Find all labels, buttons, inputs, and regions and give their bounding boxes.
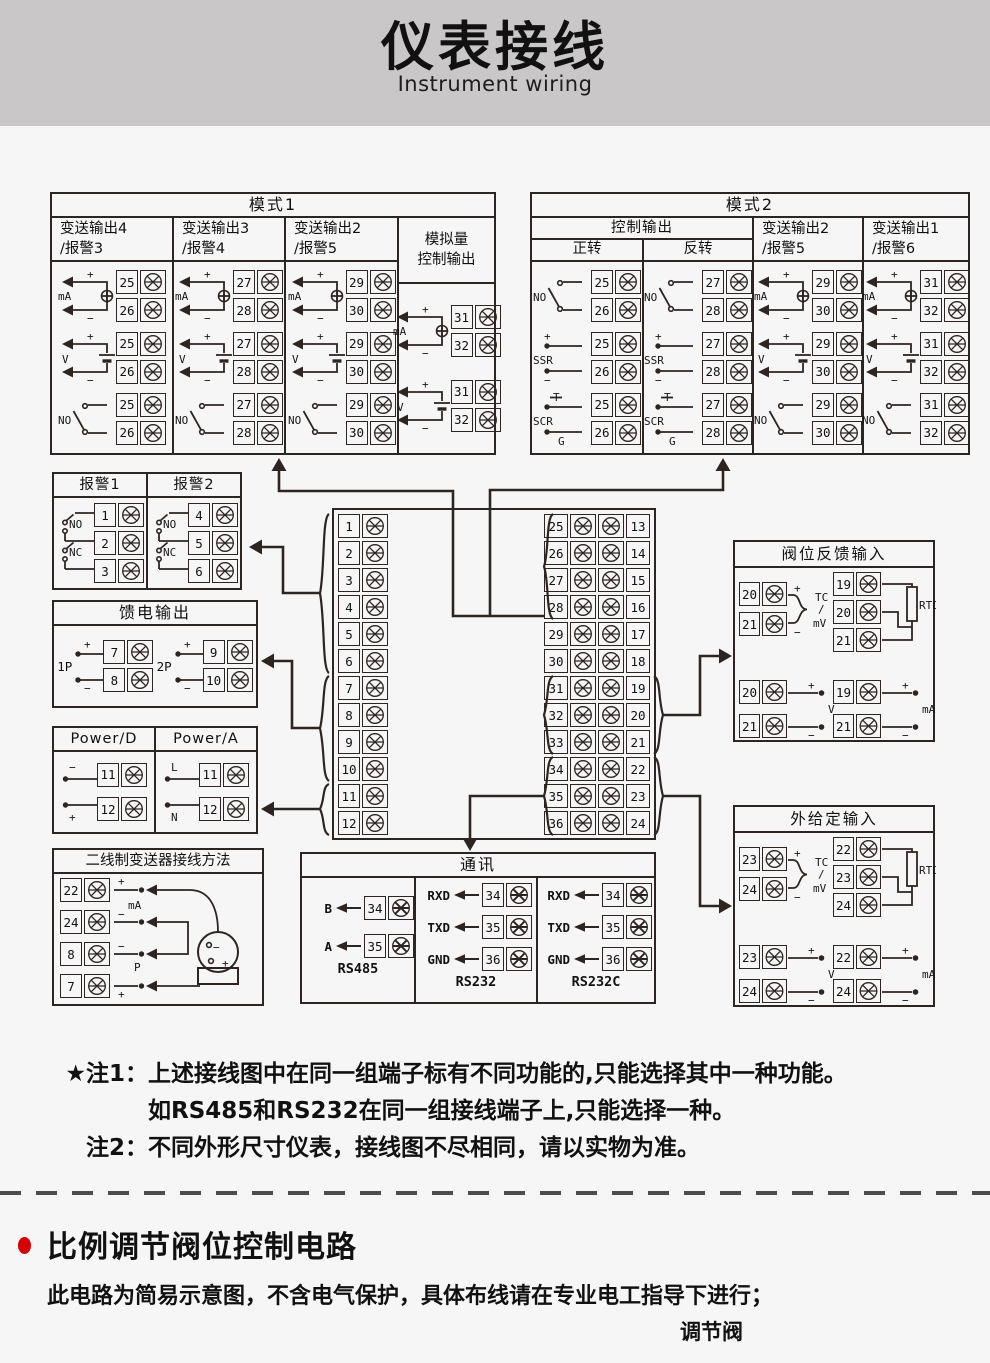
terminal-32-20: 3220 [544, 703, 650, 727]
arrow-left-icon [573, 953, 599, 965]
screw-terminal-icon [726, 360, 752, 384]
svg-text:NC: NC [69, 546, 82, 559]
svg-text:+: + [222, 957, 229, 970]
svg-text:−: − [213, 941, 220, 954]
wire-drawing: +−mA [862, 268, 920, 324]
wiring-option-SCR: TSCRG2728 [644, 391, 752, 447]
comm-pin-RXD: RXD34 [420, 883, 532, 907]
wire-drawing: +−V [288, 330, 346, 386]
svg-text:mA: mA [922, 703, 936, 716]
terminal-22: 22 [833, 837, 881, 861]
comm-pin-A: A35 [302, 934, 414, 958]
screw-terminal-icon [362, 757, 388, 781]
screw-terminal-icon [388, 934, 414, 958]
screw-terminal-icon [570, 811, 596, 835]
screw-terminal-icon [570, 703, 596, 727]
relay-contacts-drawing: NONC [150, 501, 188, 585]
terminal-number: 11 [199, 763, 221, 787]
screw-terminal-icon [836, 393, 862, 417]
power-box: Power/D −11+12 Power/A L11N12 [52, 726, 258, 834]
terminal-12: 12 [338, 811, 388, 835]
wiring-option-mA: +−mA2728 [175, 268, 283, 324]
terminal-number: 26 [591, 421, 613, 445]
wire-drawing: NO [58, 391, 116, 447]
screw-terminal-icon [570, 541, 596, 565]
extset-v-quad: 2324+V− [739, 945, 844, 1005]
mode2-col-transmit1: 变送输出1/报警6 +−mA3132+−V3132NO3132 [862, 218, 968, 453]
wire-drawing: NO [533, 268, 591, 324]
svg-text:/: / [818, 603, 825, 616]
svg-text:−: − [184, 682, 191, 694]
terminal-number: 19 [833, 572, 854, 596]
terminal-number: 30 [346, 360, 368, 384]
terminal-number: 32 [451, 333, 473, 357]
alarm1-column: 报警1 NONC123 [54, 474, 146, 588]
comm-standard-name: RS485 [338, 961, 379, 977]
svg-text:+: + [422, 378, 429, 391]
terminal-27-15: 2715 [544, 568, 650, 592]
terminal-25: 25 [591, 270, 641, 294]
terminal-number: 11 [338, 784, 360, 808]
terminal-36: 36 [602, 947, 652, 971]
comm-pin-TXD: TXD35 [420, 915, 532, 939]
terminal-21: 21 [833, 628, 881, 652]
svg-text:−: − [794, 626, 801, 639]
terminal-number: 25 [591, 332, 613, 356]
terminal-11: 11 [338, 784, 388, 808]
svg-text:+: + [544, 330, 551, 343]
screw-terminal-icon [212, 503, 238, 527]
terminal-33-21: 3321 [544, 730, 650, 754]
terminal-number: 5 [188, 531, 210, 555]
terminal-34-22: 3422 [544, 757, 650, 781]
terminal-2: 2 [94, 531, 144, 555]
screw-terminal-icon [856, 945, 881, 969]
screw-terminal-icon [570, 622, 596, 646]
wiring-option-V: +−V2526 [58, 330, 166, 386]
wire-drawing: NO [862, 391, 920, 447]
screw-terminal-icon [570, 514, 596, 538]
svg-text:/: / [818, 868, 825, 881]
comm-standard-name: RS232C [572, 974, 621, 990]
terminal-26: 26 [116, 360, 166, 384]
screw-terminal-icon [570, 676, 596, 700]
terminal-29: 29 [812, 270, 862, 294]
terminal-number: 27 [702, 270, 724, 294]
terminal-26: 26 [591, 421, 641, 445]
wire-drawing: − [61, 761, 97, 789]
terminal-number: 23 [739, 945, 760, 969]
comm-pins: RXD34TXD35GND36 [420, 883, 532, 971]
terminal-1: 1 [94, 503, 144, 527]
terminal-number: 21 [626, 730, 650, 754]
svg-text:−: − [69, 761, 76, 774]
svg-text:−: − [544, 374, 551, 386]
terminal-number: 31 [920, 393, 942, 417]
screw-terminal-icon [118, 531, 144, 555]
svg-text:V: V [292, 353, 299, 366]
terminal-7: 7 [103, 640, 153, 664]
terminal-number: 31 [451, 380, 473, 404]
svg-text:mA: mA [288, 290, 302, 303]
terminal-number: 29 [812, 332, 834, 356]
wire-drawing: +−V [393, 378, 451, 434]
terminal-34: 34 [364, 896, 414, 920]
terminal-3: 3 [94, 559, 144, 583]
terminal-11: 11 [199, 763, 249, 787]
screw-terminal-icon [506, 947, 532, 971]
terminal-29: 29 [812, 332, 862, 356]
terminal-31: 31 [920, 393, 970, 417]
screw-terminal-icon [362, 784, 388, 808]
wiring-option-mA: +−mA2930 [754, 268, 862, 324]
terminal-19: 19 [833, 572, 881, 596]
terminal-30: 30 [346, 360, 396, 384]
terminal-number: 3 [338, 568, 360, 592]
terminal-number: 24 [833, 979, 854, 1003]
svg-text:V: V [758, 353, 765, 366]
terminal-number: 34 [482, 883, 504, 907]
terminal-25: 25 [116, 393, 166, 417]
terminal-10: 10 [203, 668, 253, 692]
terminal-number: 33 [544, 730, 568, 754]
svg-text:−: − [808, 729, 815, 740]
svg-text:+: + [204, 330, 211, 343]
terminal-6: 6 [338, 649, 388, 673]
terminal-28: 28 [702, 421, 752, 445]
screw-terminal-icon [121, 797, 147, 821]
terminal-number: 22 [626, 757, 650, 781]
terminal-25: 25 [116, 270, 166, 294]
svg-text:−: − [118, 940, 125, 953]
external-setpoint-input-box: 外给定输入 2324+−TC/mV 222324RTD 2324+V− 2224… [733, 805, 935, 1007]
svg-text:−: − [783, 374, 790, 386]
screw-terminal-icon [626, 883, 652, 907]
terminal-number: 28 [233, 298, 255, 322]
svg-text:+: + [118, 988, 125, 1000]
wire-drawing: +−V [754, 330, 812, 386]
terminal-number: 30 [812, 360, 834, 384]
svg-text:−: − [84, 682, 91, 694]
screw-terminal-icon [140, 298, 166, 322]
terminal-number: 30 [544, 649, 568, 673]
terminal-35: 35 [482, 915, 532, 939]
screw-terminal-icon [257, 421, 283, 445]
terminal-number: 4 [338, 595, 360, 619]
screw-terminal-icon [121, 763, 147, 787]
terminal-number: 25 [591, 270, 613, 294]
terminal-number: 21 [739, 714, 760, 738]
power-row: −11 [61, 761, 147, 789]
terminal-number: 6 [188, 559, 210, 583]
screw-terminal-icon [362, 703, 388, 727]
svg-text:−: − [783, 312, 790, 324]
wire-drawing: +−mA [288, 268, 346, 324]
terminal-29-17: 2917 [544, 622, 650, 646]
comm-standard-name: RS232 [456, 974, 497, 990]
terminal-number: 25 [591, 393, 613, 417]
arrow-left-icon [335, 940, 361, 952]
terminal-number: 7 [338, 676, 360, 700]
terminal-strip: 1234567891011122513261427152816291730183… [332, 508, 656, 840]
screw-terminal-icon [506, 883, 532, 907]
terminal-28: 28 [233, 360, 283, 384]
terminal-number: 29 [812, 270, 834, 294]
terminal-21: 21 [739, 714, 787, 738]
svg-text:NC: NC [163, 546, 176, 559]
control-output-header: 控制输出 [532, 218, 752, 240]
terminal-number: 28 [702, 298, 724, 322]
wire-drawing: +− [73, 638, 103, 694]
arrow-left-icon [453, 953, 479, 965]
screw-terminal-icon [615, 421, 641, 445]
screw-terminal-icon [762, 680, 787, 704]
screw-terminal-icon [598, 541, 624, 565]
note-1: ★注1： 上述接线图中在同一组端子标有不同功能的,只能选择其中一种功能。 [45, 1056, 965, 1093]
screw-terminal-icon [856, 714, 881, 738]
screw-terminal-icon [944, 421, 970, 445]
screw-terminal-icon [362, 568, 388, 592]
svg-text:P: P [134, 961, 141, 974]
arrow-left-icon [453, 921, 479, 933]
terminal-number: 29 [812, 393, 834, 417]
terminal-number: 32 [451, 408, 473, 432]
svg-text:V: V [62, 353, 69, 366]
screw-terminal-icon [118, 503, 144, 527]
terminal-number: 29 [346, 270, 368, 294]
screw-terminal-icon [615, 393, 641, 417]
svg-text:mA: mA [175, 290, 189, 303]
wire-drawing: +−V [175, 330, 233, 386]
svg-text:+: + [794, 582, 801, 595]
screw-terminal-icon [570, 568, 596, 592]
wire-drawing: TSCRG [644, 391, 702, 447]
terminal-number: 36 [602, 947, 624, 971]
terminal-number: 23 [833, 865, 854, 889]
arrow-left-icon [573, 889, 599, 901]
svg-text:+: + [794, 847, 801, 860]
svg-text:+: + [118, 875, 125, 888]
terminal-31: 31 [920, 270, 970, 294]
terminal-2: 2 [338, 541, 388, 565]
svg-text:NO: NO [175, 414, 188, 427]
svg-text:+: + [902, 680, 909, 692]
terminal-12: 12 [199, 797, 249, 821]
terminal-8: 8 [103, 668, 153, 692]
svg-text:−: − [794, 891, 801, 904]
screw-terminal-icon [212, 559, 238, 583]
terminal-number: 25 [116, 332, 138, 356]
screw-terminal-icon [626, 947, 652, 971]
terminal-number: 36 [482, 947, 504, 971]
screw-terminal-icon [362, 649, 388, 673]
terminal-26: 26 [591, 360, 641, 384]
screw-terminal-icon [598, 568, 624, 592]
terminal-number: 21 [739, 612, 760, 636]
terminal-number: 23 [739, 847, 760, 871]
screw-terminal-icon [726, 270, 752, 294]
terminal-number: 26 [116, 360, 138, 384]
svg-text:+: + [317, 330, 324, 343]
terminal-number: 28 [702, 421, 724, 445]
terminal-number: 21 [833, 628, 854, 652]
screw-terminal-icon [140, 421, 166, 445]
terminal-number: 32 [920, 298, 942, 322]
svg-text:mA: mA [754, 290, 768, 303]
screw-terminal-icon [836, 421, 862, 445]
mode1-col-transmit4: 变送输出4/报警3 +−mA2526+−V2526NO2526 [52, 218, 172, 453]
svg-text:V: V [866, 353, 873, 366]
svg-text:+: + [902, 945, 909, 957]
svg-text:−: − [87, 312, 94, 324]
screw-terminal-icon [944, 360, 970, 384]
wire-drawing: +−V [862, 330, 920, 386]
mode1-title: 模式1 [52, 194, 494, 218]
terminal-25: 25 [116, 332, 166, 356]
screw-terminal-icon [856, 837, 881, 861]
terminal-number: 12 [97, 797, 119, 821]
terminal-number: 31 [920, 270, 942, 294]
screw-terminal-icon [598, 676, 624, 700]
screw-terminal-icon [212, 531, 238, 555]
terminal-35-23: 3523 [544, 784, 650, 808]
screw-terminal-icon [598, 595, 624, 619]
terminal-32: 32 [451, 408, 501, 432]
terminal-23: 23 [739, 847, 787, 871]
terminal-26-14: 2614 [544, 541, 650, 565]
terminal-28-16: 2816 [544, 595, 650, 619]
comm-pin-GND: GND36 [540, 947, 652, 971]
wiring-option-mA: +−mA2526 [58, 268, 166, 324]
wiring-option-SSR: +SSR−2728 [644, 330, 752, 386]
screw-terminal-icon [615, 332, 641, 356]
screw-terminal-icon [726, 393, 752, 417]
svg-text:−: − [891, 312, 898, 324]
extset-tc-quad: 2324+−TC/mV [739, 847, 844, 905]
terminal-number: 22 [833, 837, 854, 861]
terminal-number: 12 [199, 797, 221, 821]
terminal-number: 25 [116, 270, 138, 294]
terminal-28: 28 [233, 298, 283, 322]
arrow-left-icon [573, 921, 599, 933]
terminal-31: 31 [451, 380, 501, 404]
screw-terminal-icon [388, 896, 414, 920]
terminal-26: 26 [116, 421, 166, 445]
screw-terminal-icon [475, 408, 501, 432]
wire-drawing: NO [754, 391, 812, 447]
terminal-number: 13 [626, 514, 650, 538]
screw-terminal-icon [475, 333, 501, 357]
terminal-number: 24 [833, 893, 854, 917]
wiring-option-V: +−V2930 [288, 330, 396, 386]
terminal-number: 19 [833, 680, 854, 704]
svg-text:N: N [171, 811, 178, 823]
screw-terminal-icon [598, 811, 624, 835]
terminal-number: 30 [346, 298, 368, 322]
terminal-21: 21 [833, 714, 881, 738]
terminal-30-18: 3018 [544, 649, 650, 673]
comm-pins: RXD34TXD35GND36 [540, 883, 652, 971]
svg-text:+: + [783, 330, 790, 343]
terminal-36: 36 [482, 947, 532, 971]
terminal-number: 30 [812, 421, 834, 445]
feed-group-1p: 1P+−78 [57, 638, 153, 694]
screw-terminal-icon [475, 380, 501, 404]
terminal-number: 10 [338, 757, 360, 781]
section2-title: 比例调节阀位控制电路 [47, 1222, 357, 1266]
svg-text:+: + [808, 945, 815, 957]
terminal-34: 34 [602, 883, 652, 907]
terminal-number: 9 [203, 640, 225, 664]
screw-terminal-icon [856, 600, 881, 624]
note-2: 注2： 不同外形尺寸仪表，接线图不尽相同，请以实物为准。 [45, 1130, 965, 1167]
svg-text:+: + [891, 330, 898, 343]
terminal-30: 30 [346, 298, 396, 322]
terminal-number: 6 [338, 649, 360, 673]
svg-text:NO: NO [862, 414, 875, 427]
screw-terminal-icon [598, 703, 624, 727]
screw-terminal-icon [598, 730, 624, 754]
wire-drawing: +SSR− [533, 330, 591, 386]
svg-text:NO: NO [533, 291, 546, 304]
terminal-12: 12 [97, 797, 147, 821]
screw-terminal-icon [762, 945, 787, 969]
svg-text:−: − [204, 374, 211, 386]
screw-terminal-icon [570, 730, 596, 754]
screw-terminal-icon [118, 559, 144, 583]
screw-terminal-icon [140, 270, 166, 294]
comm-pin-TXD: TXD35 [540, 915, 652, 939]
screw-terminal-icon [944, 393, 970, 417]
terminal-7: 7 [338, 676, 388, 700]
wire-drawing: RTD [882, 572, 936, 656]
svg-text:−: − [317, 374, 324, 386]
wire-drawing: NO [644, 268, 702, 324]
screw-terminal-icon [944, 270, 970, 294]
svg-text:−: − [422, 347, 429, 359]
terminal-32: 32 [920, 298, 970, 322]
screw-terminal-icon [836, 360, 862, 384]
terminal-24: 24 [739, 979, 787, 1003]
terminal-number: 20 [626, 703, 650, 727]
screw-terminal-icon [856, 893, 881, 917]
terminal-number: 36 [544, 811, 568, 835]
note-1b: 如RS485和RS232在同一组接线端子上,只能选择一种。 [45, 1093, 965, 1130]
power-row: +12 [61, 795, 147, 823]
screw-terminal-icon [762, 847, 787, 871]
terminal-32: 32 [920, 360, 970, 384]
rs485-column: B34A35RS485 [302, 878, 414, 1002]
mode2-box: 模式2 控制输出 正转 NO2526+SSR−2526TSCRG2526 反转 … [530, 192, 970, 455]
svg-text:mA: mA [922, 968, 936, 981]
terminal-number: 32 [920, 360, 942, 384]
screw-terminal-icon [127, 668, 153, 692]
screw-terminal-icon [615, 270, 641, 294]
terminal-20: 20 [739, 582, 787, 606]
wiring-option-NO: NO2526 [58, 391, 166, 447]
terminal-number: 5 [338, 622, 360, 646]
terminal-number: 15 [626, 568, 650, 592]
svg-text:+: + [808, 680, 815, 692]
arrow-left-icon [453, 889, 479, 901]
terminal-5: 5 [188, 531, 238, 555]
screw-terminal-icon [615, 298, 641, 322]
wire-drawing: +SSR− [644, 330, 702, 386]
wiring-option-SCR: TSCRG2526 [533, 391, 641, 447]
regulating-valve-caption: 调节阀 [680, 1316, 743, 1346]
page-header: 仪表接线 Instrument wiring [0, 0, 990, 126]
rs232c-column: RXD34TXD35GND36RS232C [536, 878, 654, 1002]
